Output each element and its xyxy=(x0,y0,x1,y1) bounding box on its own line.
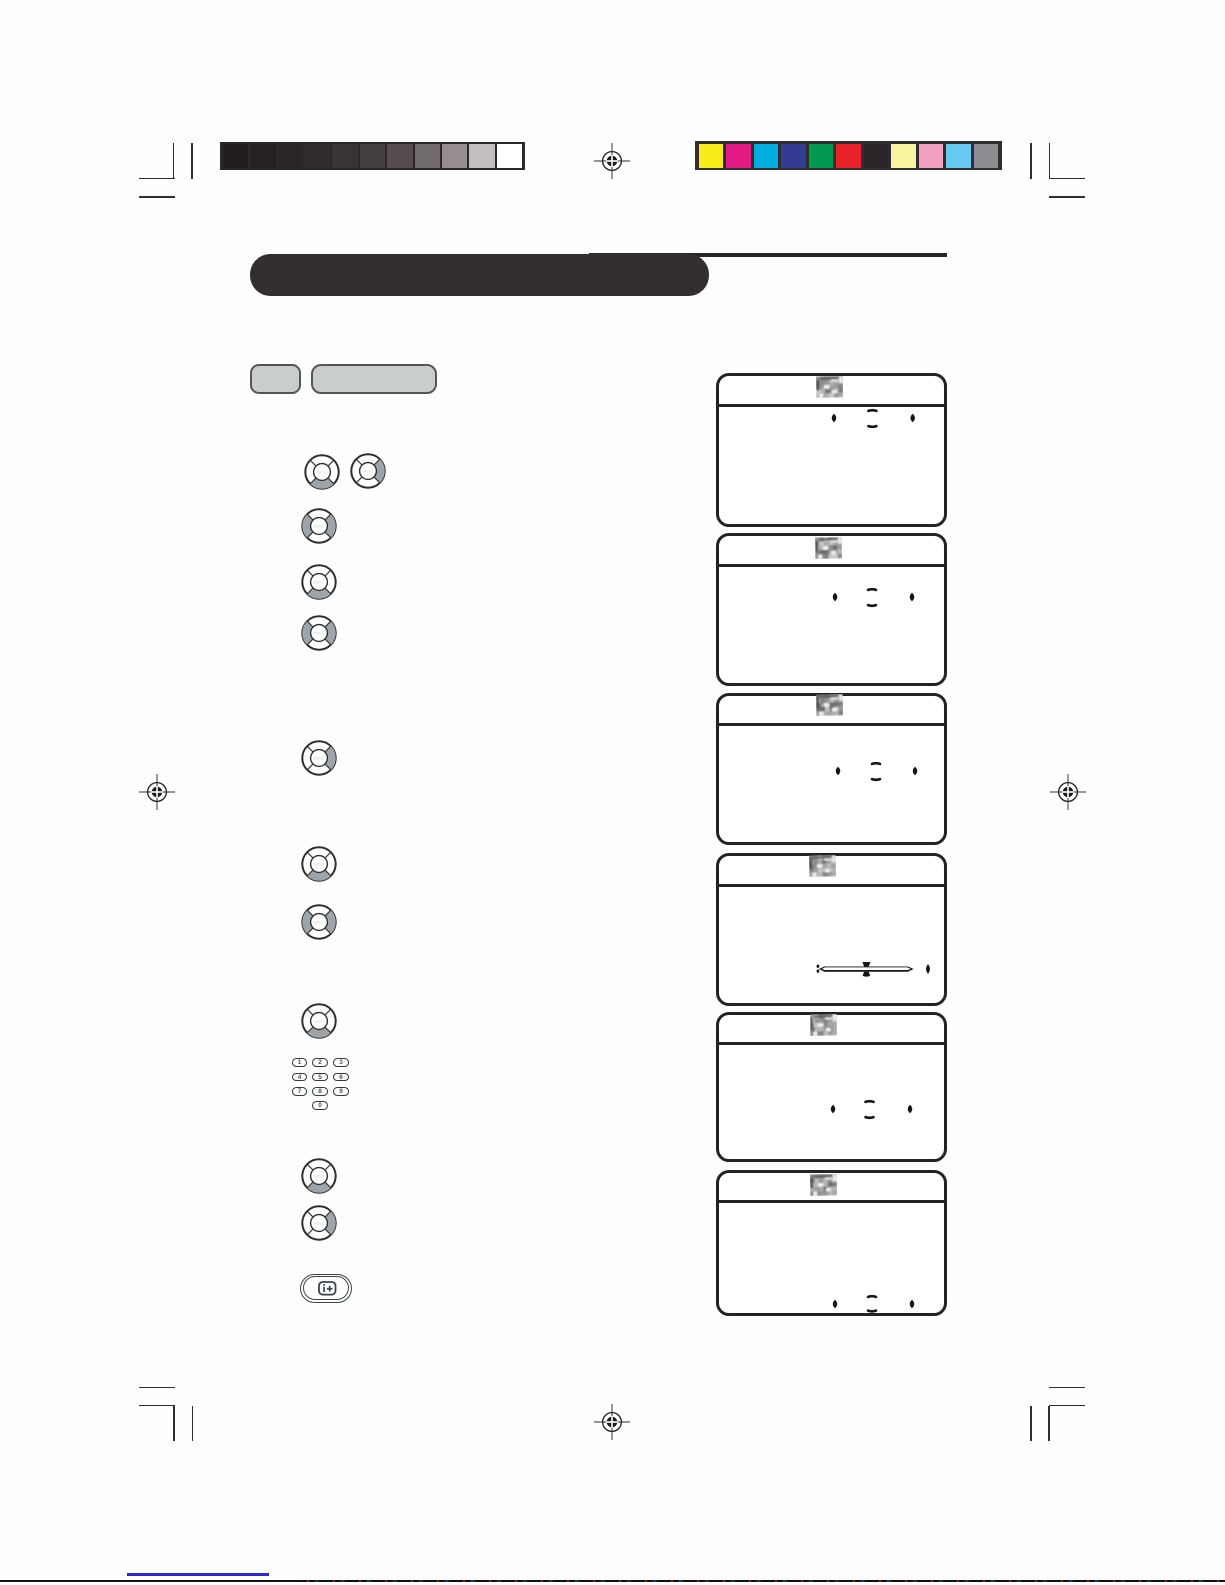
svg-text:MENU: MENU xyxy=(314,1174,325,1178)
svg-text:MENU: MENU xyxy=(314,862,325,866)
svg-text:MENU: MENU xyxy=(317,470,328,474)
svg-text:MENU: MENU xyxy=(314,631,325,635)
svg-text:MENU: MENU xyxy=(314,756,325,760)
svg-text:MENU: MENU xyxy=(363,469,374,473)
svg-text:MENU: MENU xyxy=(314,920,325,924)
svg-text:MENU: MENU xyxy=(314,1019,325,1023)
svg-text:MENU: MENU xyxy=(314,524,325,528)
svg-text:MENU: MENU xyxy=(314,580,325,584)
svg-text:MENU: MENU xyxy=(314,1221,325,1225)
